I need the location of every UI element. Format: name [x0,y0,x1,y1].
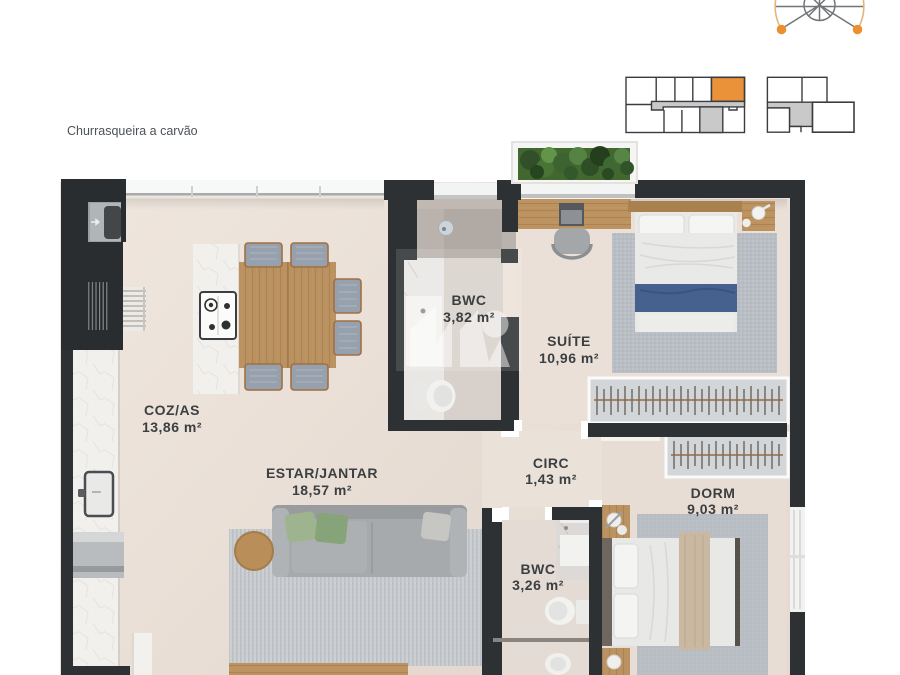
svg-text:COZ/AS: COZ/AS [144,402,200,418]
svg-text:DORM: DORM [691,485,736,501]
svg-text:13,86 m²: 13,86 m² [142,419,202,435]
svg-text:SUÍTE: SUÍTE [547,333,591,349]
svg-text:Churrasqueira a carvão: Churrasqueira a carvão [67,124,198,138]
svg-text:18,57 m²: 18,57 m² [292,482,352,498]
svg-text:9,03 m²: 9,03 m² [687,501,739,517]
svg-text:3,82 m²: 3,82 m² [443,309,495,325]
svg-text:CIRC: CIRC [533,455,569,471]
svg-text:3,26 m²: 3,26 m² [512,577,564,593]
svg-text:BWC: BWC [452,292,487,308]
svg-text:1,43 m²: 1,43 m² [525,471,577,487]
svg-text:10,96 m²: 10,96 m² [539,350,599,366]
svg-text:BWC: BWC [521,561,556,577]
svg-text:ESTAR/JANTAR: ESTAR/JANTAR [266,465,378,481]
